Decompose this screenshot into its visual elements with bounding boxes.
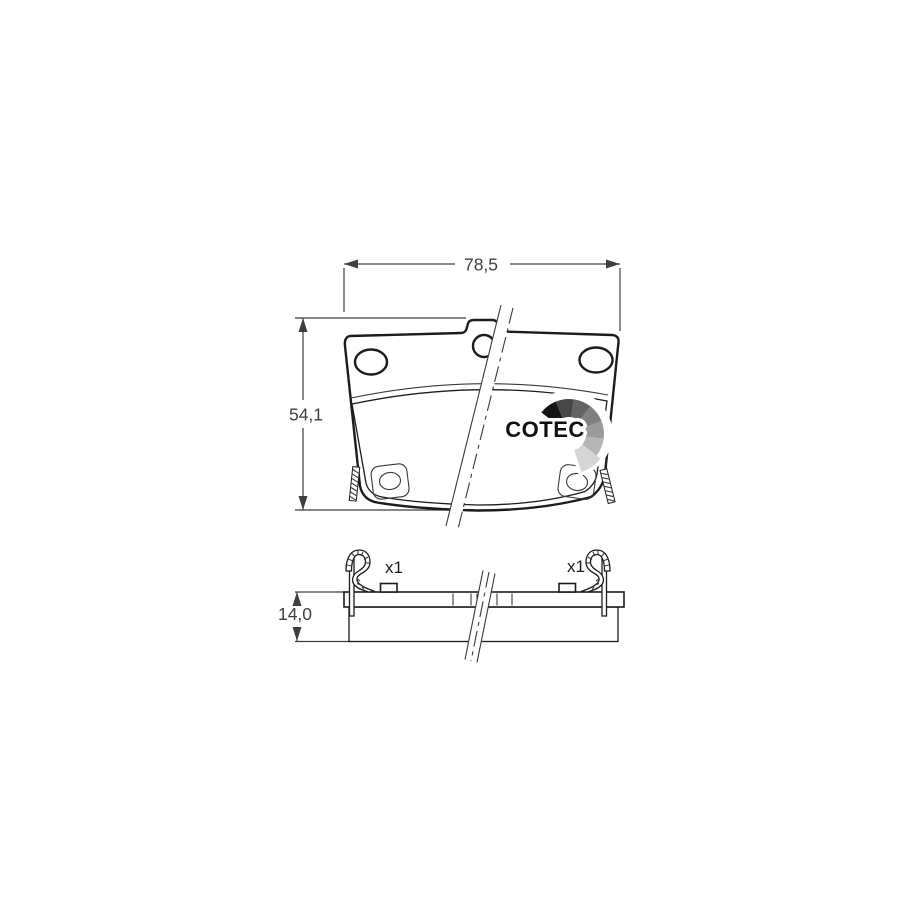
left-clip-count-label: x1 — [385, 558, 403, 577]
arrow-down-icon — [293, 627, 302, 641]
logo-text: COTEC — [505, 417, 585, 442]
width-dimension-label: 78,5 — [464, 255, 498, 275]
brake-pad-back-view: COTEC — [345, 305, 619, 529]
thickness-dimension: 14,0 — [278, 592, 351, 642]
right-shim-serration — [600, 469, 615, 504]
left-tab — [381, 584, 398, 593]
height-dimension-label: 54,1 — [289, 405, 323, 425]
left-shim-serration — [349, 467, 360, 502]
technical-drawing-canvas: 78,5 54,1 14,0 — [0, 0, 915, 915]
brake-pad-drawing: 78,5 54,1 14,0 — [0, 0, 915, 915]
arrow-left-icon — [344, 260, 358, 269]
arrow-down-icon — [299, 496, 308, 510]
break-line — [465, 571, 495, 663]
left-guide-hole — [355, 350, 387, 375]
right-guide-hole — [580, 348, 613, 373]
right-clip-count-label: x1 — [567, 557, 585, 576]
thickness-dimension-label: 14,0 — [278, 604, 312, 624]
arrow-up-icon — [299, 318, 308, 332]
arrow-right-icon — [606, 260, 620, 269]
brake-pad-side-view: x1 x1 — [344, 550, 624, 663]
right-tab — [559, 584, 576, 593]
